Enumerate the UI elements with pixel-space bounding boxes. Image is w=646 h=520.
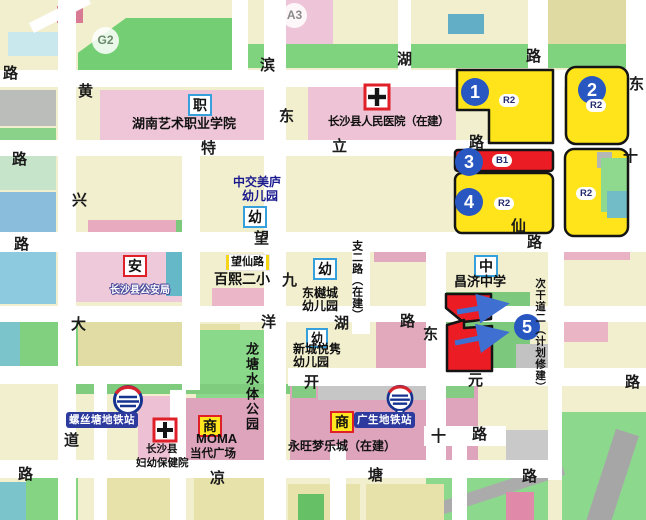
road-label: 元	[468, 373, 483, 388]
road-label: 路	[3, 66, 18, 81]
road-label: 大	[71, 317, 86, 332]
road-label: 路	[526, 49, 541, 64]
road-label: 路	[625, 375, 640, 390]
poi-xincheng-kindergarten-2: 幼儿园	[293, 356, 329, 370]
badge-commerce-aeon: 商	[330, 411, 354, 433]
zone-code-r2-2: R2	[586, 99, 606, 112]
poi-moma-2: 当代广场	[190, 448, 236, 461]
poi-longtang-park: 龙塘水体公园	[243, 342, 258, 460]
road-label: 黄	[78, 84, 93, 99]
badge-vocational-college: 职	[188, 94, 212, 116]
road-label: 十	[431, 429, 446, 444]
poi-moma: MOMA	[196, 432, 237, 447]
area-code-g2: G2	[92, 27, 119, 54]
metro-station-guangsheng: 广生地铁站	[354, 412, 415, 428]
road-secondary-planned: 次干道二（计划修建）	[534, 278, 546, 430]
poi-wangxian-road-sign: 望仙路	[226, 255, 269, 270]
road-label: 特	[201, 141, 216, 156]
road-label: 路	[18, 467, 33, 482]
urban-planning-map: G2 A3 1 2 3 4 5 R2 R2 B1 R2 R2 职 幼 幼 幼 中…	[0, 0, 646, 520]
badge-kindergarten-2: 幼	[313, 258, 337, 280]
road-label: 东	[629, 77, 644, 92]
poi-zhongjiao-kindergarten-2: 幼儿园	[242, 190, 278, 204]
badge-kindergarten-1: 幼	[243, 206, 267, 228]
poi-dongyue-kindergarten-2: 幼儿园	[302, 300, 338, 314]
road-label: 路	[522, 469, 537, 484]
marker-4: 4	[455, 188, 483, 216]
hospital-cross-icon	[363, 83, 391, 111]
poi-baixi-school: 百熙二小	[214, 271, 270, 287]
road-label: 望	[254, 231, 269, 246]
metro-station-luositang: 螺丝塘地铁站	[66, 412, 138, 428]
road-label: 十	[623, 149, 638, 164]
marker-3: 3	[455, 148, 483, 176]
poi-zhongjiao-kindergarten: 中交美庐	[233, 176, 281, 190]
road-label: 东	[279, 109, 294, 124]
marker-1: 1	[461, 78, 489, 106]
road-label: 凉	[210, 471, 225, 486]
road-label: 路	[469, 135, 484, 150]
zone-5-teal-patch	[607, 191, 628, 218]
road-label: 路	[527, 235, 542, 250]
road-label: 东	[423, 327, 438, 342]
area-code-a3: A3	[282, 3, 307, 28]
poi-art-college: 湖南艺术职业学院	[132, 117, 236, 132]
hospital-cross-icon	[152, 417, 178, 443]
road-label: 兴	[72, 193, 87, 208]
zone-code-r2-4: R2	[494, 197, 514, 210]
red-parcel-lower	[447, 320, 492, 371]
poi-maternity-hospital: 长沙县	[146, 443, 178, 455]
road-label: 仙	[511, 219, 526, 234]
road-label: 湖	[334, 316, 349, 331]
poi-changji-school: 昌济中学	[454, 275, 506, 290]
poi-police-bureau: 长沙县公安局	[110, 285, 170, 297]
zone-code-r2-5: R2	[576, 187, 596, 200]
road-label: 九	[282, 273, 297, 288]
road-label: 路	[12, 152, 27, 167]
road-label: 路	[14, 237, 29, 252]
poi-maternity-hospital-2: 妇幼保健院	[136, 457, 189, 469]
poi-county-hospital: 长沙县人民医院（在建）	[328, 116, 449, 129]
road-label: 湖	[397, 52, 412, 67]
road-label: 立	[332, 139, 347, 154]
road-label: 道	[64, 433, 79, 448]
road-label: 洋	[261, 315, 276, 330]
road-label: 塘	[368, 468, 383, 483]
road-label: 路	[472, 427, 487, 442]
badge-police: 安	[123, 255, 147, 277]
road-label: 路	[400, 314, 415, 329]
road-label: 开	[304, 375, 319, 390]
poi-aeon-mall: 永旺梦乐城（在建）	[288, 440, 396, 454]
zone-code-r2-1: R2	[499, 94, 519, 107]
road-zhier-under-construction: 支二路（在建）	[350, 240, 363, 335]
zone-code-b1: B1	[492, 154, 512, 167]
road-label: 滨	[260, 58, 275, 73]
